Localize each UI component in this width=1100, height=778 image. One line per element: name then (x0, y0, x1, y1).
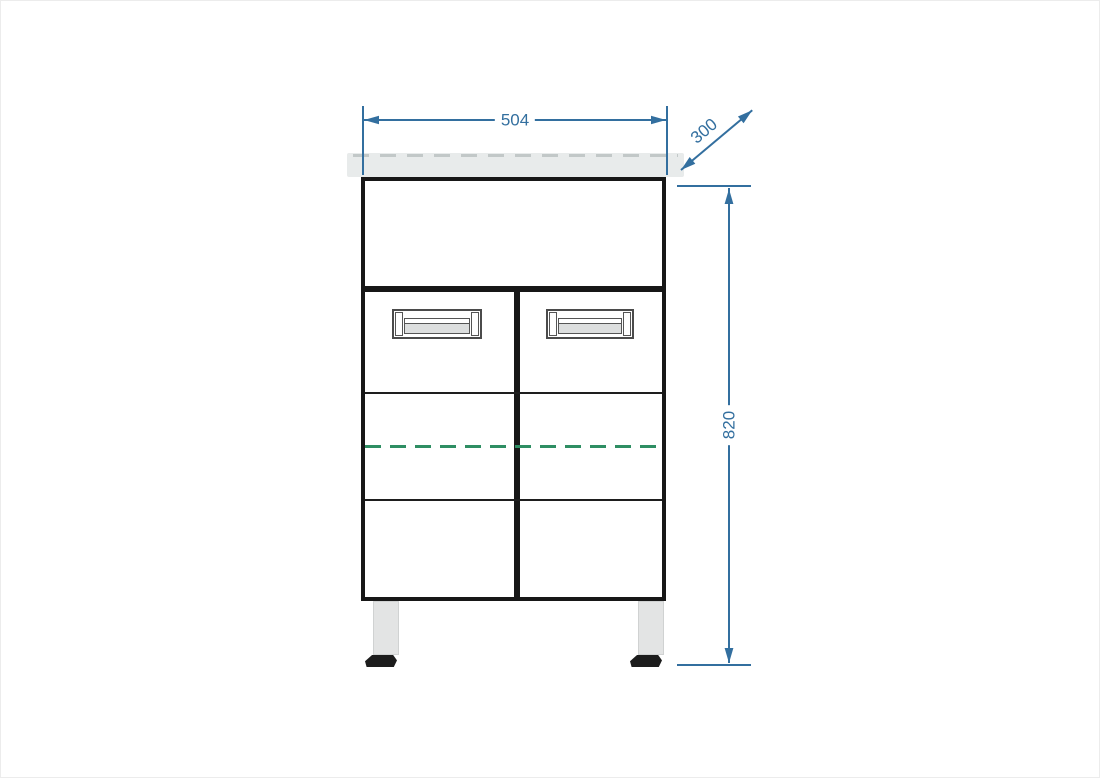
left-door-handle (392, 309, 482, 339)
arrow-up-right-icon (738, 107, 755, 123)
handle-end-cap (395, 312, 403, 336)
countertop (347, 153, 684, 177)
handle-end-cap (623, 312, 631, 336)
arrow-down-icon (725, 648, 734, 663)
cabinet-inner (365, 181, 662, 597)
handle-end-cap (549, 312, 557, 336)
arrow-left-icon (364, 116, 379, 125)
width-dimension-label: 504 (495, 111, 535, 130)
handle-bar (558, 318, 622, 334)
right-leg (638, 601, 664, 655)
handle-bar-fill (559, 323, 621, 333)
height-dimension (677, 186, 751, 665)
height-dimension-label: 820 (720, 405, 739, 445)
handle-end-cap (471, 312, 479, 336)
depth-dimension-label: 300 (682, 111, 725, 152)
countertop-dashed-edge (353, 154, 678, 157)
arrow-up-icon (725, 189, 734, 204)
handle-bar (404, 318, 470, 334)
horizontal-divider (365, 392, 662, 394)
horizontal-divider (365, 499, 662, 501)
right-foot (630, 655, 662, 667)
right-door-handle (546, 309, 634, 339)
left-leg (373, 601, 399, 655)
technical-drawing: 504 820 300 (0, 0, 1100, 778)
cabinet-body (361, 177, 666, 601)
arrow-right-icon (651, 116, 666, 125)
handle-bar-fill (405, 323, 469, 333)
left-foot (365, 655, 397, 667)
top-panel (365, 181, 662, 286)
shelf-dashed-line (365, 445, 662, 448)
